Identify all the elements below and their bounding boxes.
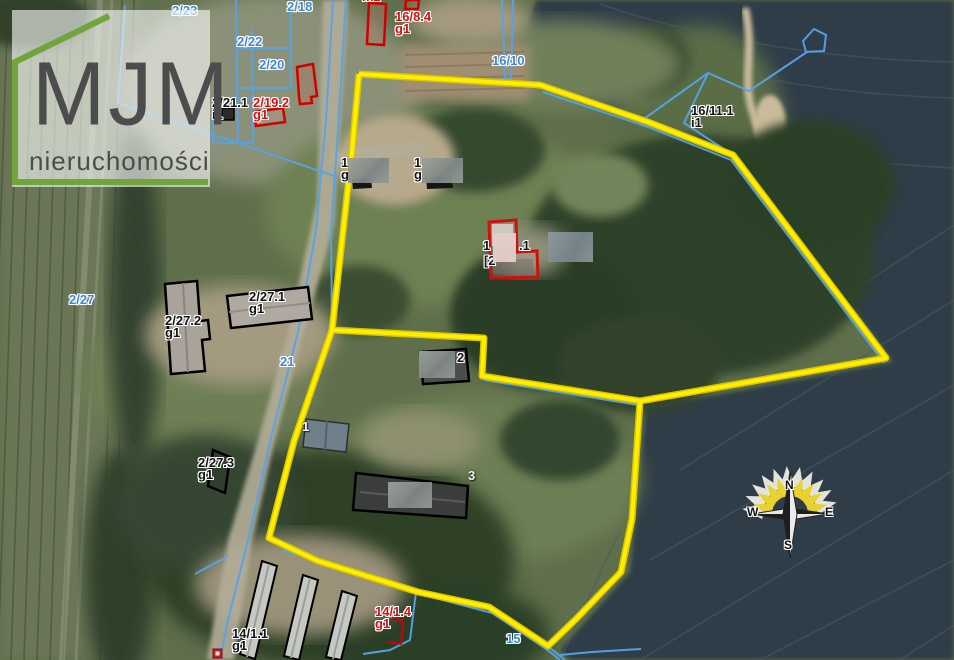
compass-west-label: W	[747, 505, 758, 519]
aerial-map[interactable]: 2/232/182/222/2016/102/27211516/8.4 g12/…	[0, 0, 954, 660]
compass-south-label: S	[784, 538, 792, 552]
compass-north-label: N	[785, 478, 794, 492]
logo-subtitle: nieruchomości	[29, 146, 210, 177]
censor-box	[388, 482, 432, 508]
censor-box	[348, 158, 389, 183]
logo-title: MJM	[32, 49, 212, 139]
censor-box	[548, 232, 593, 262]
censor-box	[493, 233, 516, 262]
compass-east-label: E	[825, 505, 833, 519]
agency-logo-watermark: MJM nieruchomości	[12, 10, 210, 187]
censor-box	[419, 351, 455, 378]
censor-box	[422, 158, 463, 183]
